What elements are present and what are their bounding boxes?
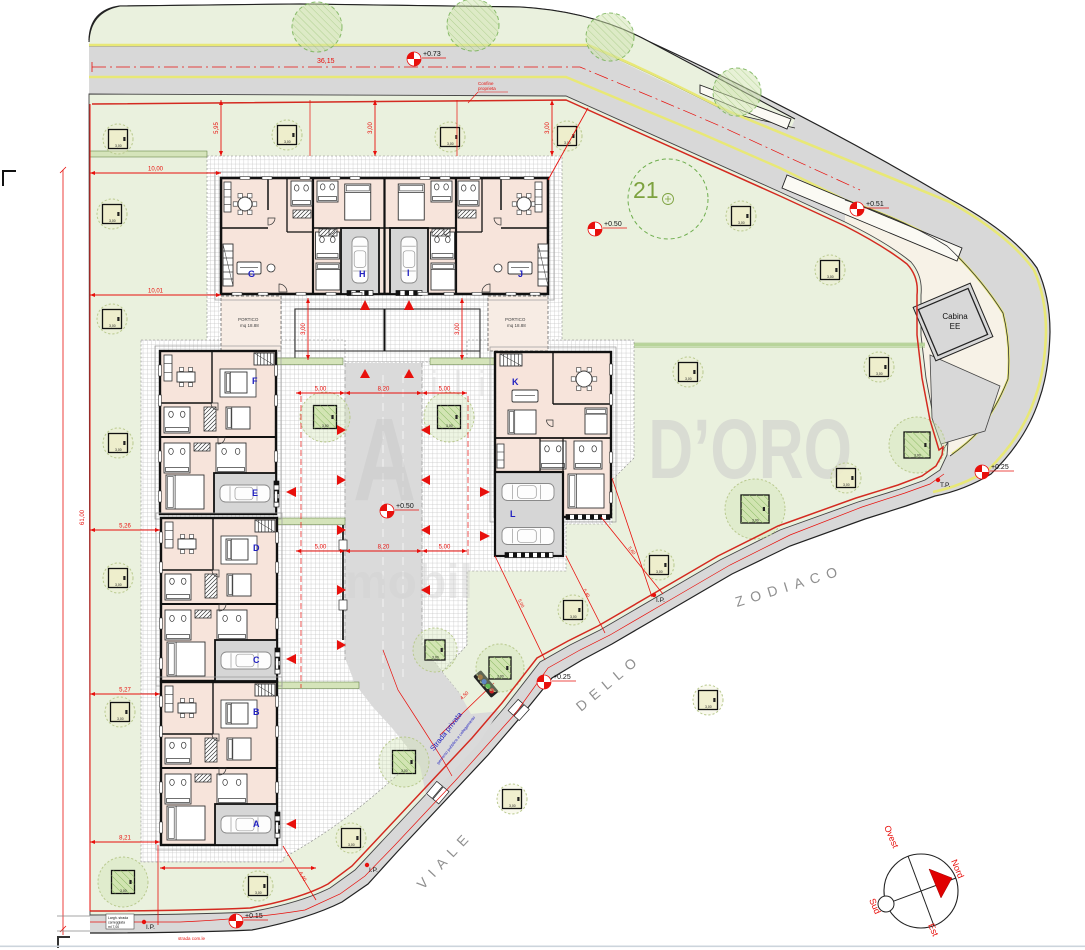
svg-text:3,00: 3,00 [322, 424, 329, 428]
svg-text:E: E [252, 488, 258, 498]
svg-text:5,00: 5,00 [439, 545, 451, 551]
svg-text:3,00: 3,00 [509, 804, 516, 808]
svg-text:3,00: 3,00 [117, 717, 124, 721]
svg-text:+0.51: +0.51 [866, 201, 884, 208]
svg-text:3,00: 3,00 [432, 656, 439, 660]
svg-text:PORTICO: PORTICO [505, 317, 526, 322]
svg-text:5,00: 5,00 [315, 387, 327, 393]
svg-text:L: L [510, 509, 516, 519]
svg-text:5,95: 5,95 [214, 122, 220, 134]
svg-text:8,20: 8,20 [378, 387, 390, 393]
svg-text:3,00: 3,00 [827, 275, 834, 279]
svg-text:21: 21 [633, 177, 659, 203]
svg-text:3,00: 3,00 [284, 140, 291, 144]
svg-text:F: F [252, 376, 258, 386]
svg-text:3,00: 3,00 [368, 122, 374, 134]
svg-text:3,00: 3,00 [109, 324, 116, 328]
svg-text:+0.50: +0.50 [604, 221, 622, 228]
svg-text:EE: EE [950, 322, 961, 331]
svg-text:3,00: 3,00 [447, 142, 454, 146]
svg-text:I: I [407, 268, 410, 278]
svg-text:+0.15: +0.15 [245, 913, 263, 920]
svg-text:3,00: 3,00 [843, 483, 850, 487]
svg-text:3,00: 3,00 [656, 570, 663, 574]
svg-text:proprieta: proprieta [478, 86, 496, 91]
svg-text:A: A [253, 819, 260, 829]
svg-text:+0.50: +0.50 [396, 503, 414, 510]
svg-text:mq 18.88: mq 18.88 [507, 323, 526, 328]
svg-text:I.P.: I.P. [146, 924, 155, 931]
svg-text:K: K [512, 377, 519, 387]
svg-text:Largh. strada: Largh. strada [108, 916, 128, 920]
svg-text:3,00: 3,00 [876, 372, 883, 376]
svg-text:5,00: 5,00 [315, 545, 327, 551]
svg-text:PORTICO: PORTICO [238, 317, 259, 322]
svg-text:carreggiata: carreggiata [108, 921, 125, 925]
svg-text:61,00: 61,00 [80, 509, 86, 525]
svg-text:+0.73: +0.73 [423, 51, 441, 58]
svg-text:5,27: 5,27 [119, 688, 131, 694]
svg-text:3,00: 3,00 [255, 891, 262, 895]
svg-text:3,00: 3,00 [115, 583, 122, 587]
svg-text:I.P.: I.P. [369, 867, 378, 874]
svg-text:mq 18.88: mq 18.88 [240, 323, 259, 328]
svg-text:3,00: 3,00 [348, 843, 355, 847]
svg-text:3,00: 3,00 [455, 323, 461, 335]
svg-text:5,26: 5,26 [119, 524, 131, 530]
svg-text:36,15: 36,15 [317, 58, 335, 65]
svg-text:ml 7,00: ml 7,00 [108, 925, 119, 929]
svg-text:3,00: 3,00 [738, 221, 745, 225]
svg-text:3,00: 3,00 [109, 219, 116, 223]
svg-text:3,00: 3,00 [401, 769, 408, 773]
svg-text:mobil: mobil [345, 556, 473, 609]
svg-text:3,00: 3,00 [570, 615, 577, 619]
svg-text:T.P.: T.P. [940, 482, 951, 489]
svg-text:5,00: 5,00 [439, 387, 451, 393]
svg-text:3,00: 3,00 [545, 122, 551, 134]
svg-text:3,00: 3,00 [446, 424, 453, 428]
svg-text:3,00: 3,00 [120, 889, 127, 893]
svg-text:8,21: 8,21 [119, 836, 131, 842]
svg-text:H: H [359, 269, 366, 279]
svg-text:3,00: 3,00 [497, 675, 504, 679]
svg-text:+0.25: +0.25 [553, 674, 571, 681]
svg-text:B: B [253, 707, 260, 717]
svg-text:3,00: 3,00 [115, 144, 122, 148]
svg-text:+0.25: +0.25 [991, 464, 1009, 471]
svg-text:3,00: 3,00 [752, 519, 759, 523]
svg-text:I.P.: I.P. [656, 597, 665, 604]
svg-text:D: D [253, 543, 260, 553]
svg-text:G: G [248, 269, 255, 279]
svg-text:10,00: 10,00 [148, 167, 164, 173]
svg-text:3,00: 3,00 [914, 454, 921, 458]
svg-text:3,00: 3,00 [705, 705, 712, 709]
svg-text:10,01: 10,01 [148, 289, 164, 295]
svg-text:3,00: 3,00 [685, 377, 692, 381]
svg-text:strada com.le: strada com.le [178, 936, 206, 941]
svg-text:C: C [253, 655, 260, 665]
svg-text:3,00: 3,00 [301, 323, 307, 335]
svg-text:Cabina: Cabina [942, 312, 968, 321]
svg-text:J: J [518, 269, 523, 279]
svg-text:8,20: 8,20 [378, 545, 390, 551]
svg-text:3,00: 3,00 [115, 448, 122, 452]
